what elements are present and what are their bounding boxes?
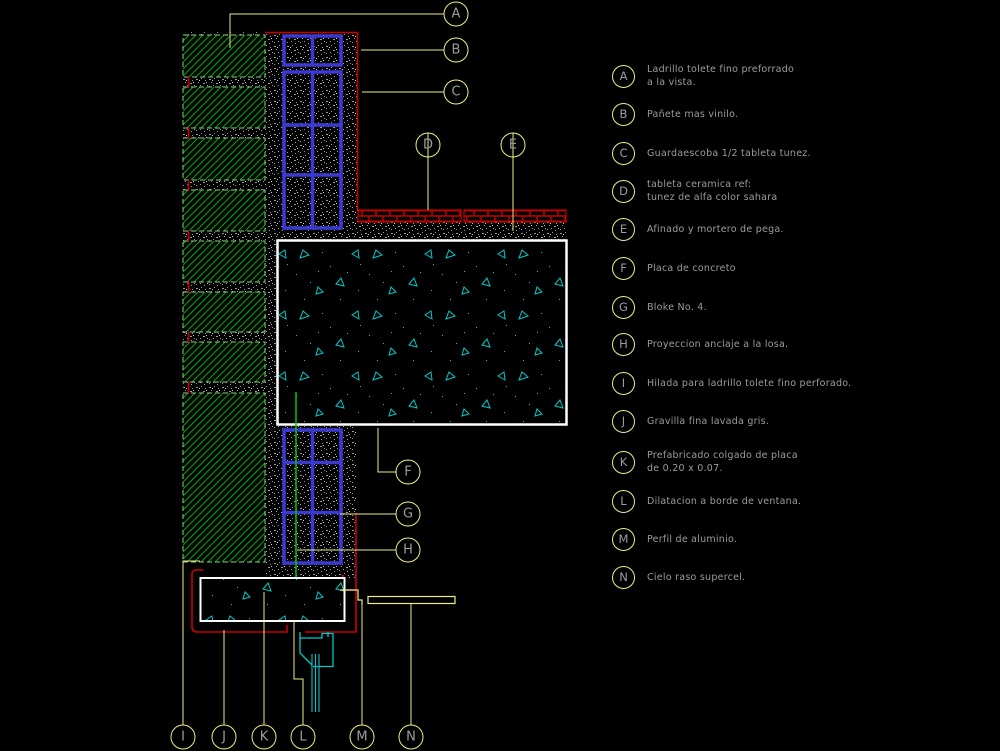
legend-text-c-1: Guardaescoba 1/2 tableta tunez. bbox=[647, 147, 811, 160]
legend-bullet-i: I bbox=[612, 372, 635, 395]
svg-text:A: A bbox=[452, 7, 461, 22]
floor-tile-strip bbox=[358, 210, 566, 222]
callout-n: N bbox=[399, 725, 423, 749]
legend-item-e: EAfinado y mortero de pega. bbox=[612, 217, 784, 241]
callout-k: K bbox=[252, 725, 276, 749]
legend-item-g: GBloke No. 4. bbox=[612, 295, 707, 319]
svg-text:J: J bbox=[221, 730, 226, 745]
ceiling-profile bbox=[340, 590, 455, 605]
svg-text:E: E bbox=[509, 138, 517, 153]
legend-text-g-1: Bloke No. 4. bbox=[647, 301, 707, 314]
legend-text-e-1: Afinado y mortero de pega. bbox=[647, 223, 784, 236]
svg-text:K: K bbox=[260, 730, 269, 745]
legend-bullet-j: J bbox=[612, 410, 635, 433]
legend-item-i: IHilada para ladrillo tolete fino perfor… bbox=[612, 371, 851, 395]
callout-m: M bbox=[350, 725, 374, 749]
legend-item-f: FPlaca de concreto bbox=[612, 256, 736, 280]
legend-item-b: BPañete mas vinilo. bbox=[612, 102, 738, 126]
legend-item-k: KPrefabricado colgado de placade 0.20 x … bbox=[612, 450, 798, 474]
legend-bullet-d: D bbox=[612, 180, 635, 203]
legend-item-a: ALadrillo tolete fino preforradoa la vis… bbox=[612, 64, 794, 88]
legend-text-a-1: Ladrillo tolete fino preforrado bbox=[647, 63, 794, 76]
legend-bullet-m: M bbox=[612, 528, 635, 551]
legend-text-b-1: Pañete mas vinilo. bbox=[647, 108, 738, 121]
legend-text-l-1: Dilatacion a borde de ventana. bbox=[647, 495, 801, 508]
legend-text-f-1: Placa de concreto bbox=[647, 262, 736, 275]
cad-wall-section-detail: A B C D E F G H I J K L M N ALadrillo to… bbox=[0, 0, 1000, 751]
legend-text-d-1: tableta ceramica ref: bbox=[647, 178, 777, 191]
legend-item-d: Dtableta ceramica ref:tunez de alfa colo… bbox=[612, 179, 777, 203]
callout-f: F bbox=[396, 460, 420, 484]
svg-text:L: L bbox=[299, 730, 307, 745]
legend-bullet-c: C bbox=[612, 142, 635, 165]
legend-text-a-2: a la vista. bbox=[647, 76, 794, 89]
legend-text-k-2: de 0.20 x 0.07. bbox=[647, 462, 798, 475]
legend-text-k-1: Prefabricado colgado de placa bbox=[647, 449, 798, 462]
svg-text:M: M bbox=[356, 730, 367, 745]
legend-text-i-1: Hilada para ladrillo tolete fino perfora… bbox=[647, 377, 851, 390]
callout-a: A bbox=[444, 2, 468, 26]
legend-item-c: CGuardaescoba 1/2 tableta tunez. bbox=[612, 141, 811, 165]
callout-j: J bbox=[212, 725, 236, 749]
legend-item-h: HProyeccion anclaje a la losa. bbox=[612, 332, 788, 356]
svg-text:G: G bbox=[403, 507, 413, 522]
legend-bullet-a: A bbox=[612, 65, 635, 88]
legend-text-h-1: Proyeccion anclaje a la losa. bbox=[647, 338, 788, 351]
callout-g: G bbox=[396, 502, 420, 526]
svg-text:F: F bbox=[404, 465, 411, 480]
legend-bullet-g: G bbox=[612, 296, 635, 319]
svg-text:H: H bbox=[403, 543, 413, 558]
svg-text:B: B bbox=[452, 43, 461, 58]
legend-bullet-l: L bbox=[612, 490, 635, 513]
legend-bullet-f: F bbox=[612, 257, 635, 280]
prefab-beam bbox=[201, 578, 345, 621]
callout-h: H bbox=[396, 538, 420, 562]
svg-text:N: N bbox=[406, 730, 416, 745]
svg-text:I: I bbox=[181, 730, 185, 745]
legend-item-j: JGravilla fina lavada gris. bbox=[612, 409, 769, 433]
svg-text:C: C bbox=[451, 85, 460, 100]
legend-bullet-k: K bbox=[612, 451, 635, 474]
legend-text-m-1: Perfil de aluminio. bbox=[647, 533, 737, 546]
legend-bullet-e: E bbox=[612, 218, 635, 241]
legend-bullet-n: N bbox=[612, 566, 635, 589]
callout-b: B bbox=[444, 38, 468, 62]
legend-item-n: NCielo raso supercel. bbox=[612, 565, 745, 589]
brick-column bbox=[183, 35, 265, 562]
window-frame-profile bbox=[300, 632, 333, 712]
legend-item-m: MPerfil de aluminio. bbox=[612, 527, 737, 551]
legend: ALadrillo tolete fino preforradoa la vis… bbox=[612, 0, 992, 751]
legend-text-d-2: tunez de alfa color sahara bbox=[647, 191, 777, 204]
callout-l: L bbox=[291, 725, 315, 749]
concrete-slab bbox=[278, 241, 567, 425]
legend-bullet-h: H bbox=[612, 333, 635, 356]
legend-bullet-b: B bbox=[612, 103, 635, 126]
legend-text-j-1: Gravilla fina lavada gris. bbox=[647, 415, 769, 428]
svg-text:D: D bbox=[423, 138, 433, 153]
callout-c: C bbox=[444, 80, 468, 104]
callout-i: I bbox=[171, 725, 195, 749]
legend-text-n-1: Cielo raso supercel. bbox=[647, 571, 745, 584]
legend-item-l: LDilatacion a borde de ventana. bbox=[612, 489, 801, 513]
